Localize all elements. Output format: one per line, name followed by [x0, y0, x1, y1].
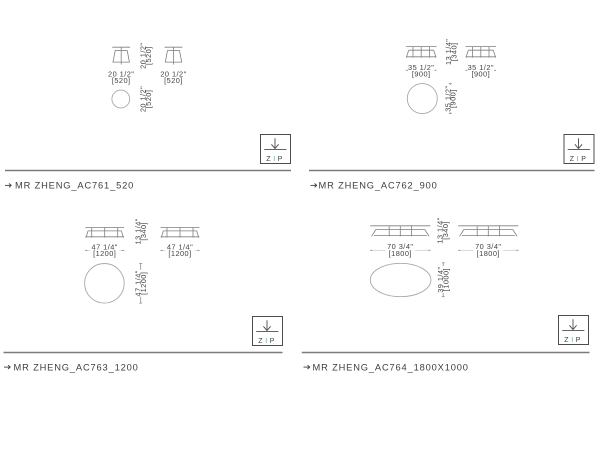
- svg-text:MR ZHENG_AC762_900: MR ZHENG_AC762_900: [319, 181, 438, 191]
- svg-text:[340]: [340]: [139, 222, 148, 241]
- svg-text:[1200]: [1200]: [93, 249, 116, 258]
- svg-text:ZIP: ZIP: [564, 337, 583, 344]
- svg-text:[520]: [520]: [112, 76, 131, 85]
- svg-text:ZIP: ZIP: [258, 338, 277, 345]
- svg-text:[900]: [900]: [449, 89, 458, 108]
- svg-text:[1800]: [1800]: [477, 249, 500, 258]
- svg-text:ZIP: ZIP: [570, 156, 589, 163]
- svg-text:[1200]: [1200]: [139, 272, 148, 295]
- svg-text:[340]: [340]: [441, 221, 450, 240]
- svg-text:[1800]: [1800]: [389, 249, 412, 258]
- svg-text:MR ZHENG_AC764_1800X1000: MR ZHENG_AC764_1800X1000: [313, 362, 469, 372]
- svg-text:[1200]: [1200]: [168, 249, 191, 258]
- svg-text:[340]: [340]: [449, 42, 458, 61]
- svg-text:[520]: [520]: [144, 90, 153, 109]
- svg-text:[1000]: [1000]: [442, 268, 451, 291]
- svg-text:[520]: [520]: [144, 46, 153, 65]
- svg-text:MR ZHENG_AC761_520: MR ZHENG_AC761_520: [15, 181, 134, 191]
- svg-text:ZIP: ZIP: [266, 156, 285, 163]
- svg-text:[900]: [900]: [412, 70, 431, 79]
- svg-text:[900]: [900]: [471, 70, 490, 79]
- svg-text:MR ZHENG_AC763_1200: MR ZHENG_AC763_1200: [14, 362, 139, 372]
- svg-text:[520]: [520]: [164, 76, 183, 85]
